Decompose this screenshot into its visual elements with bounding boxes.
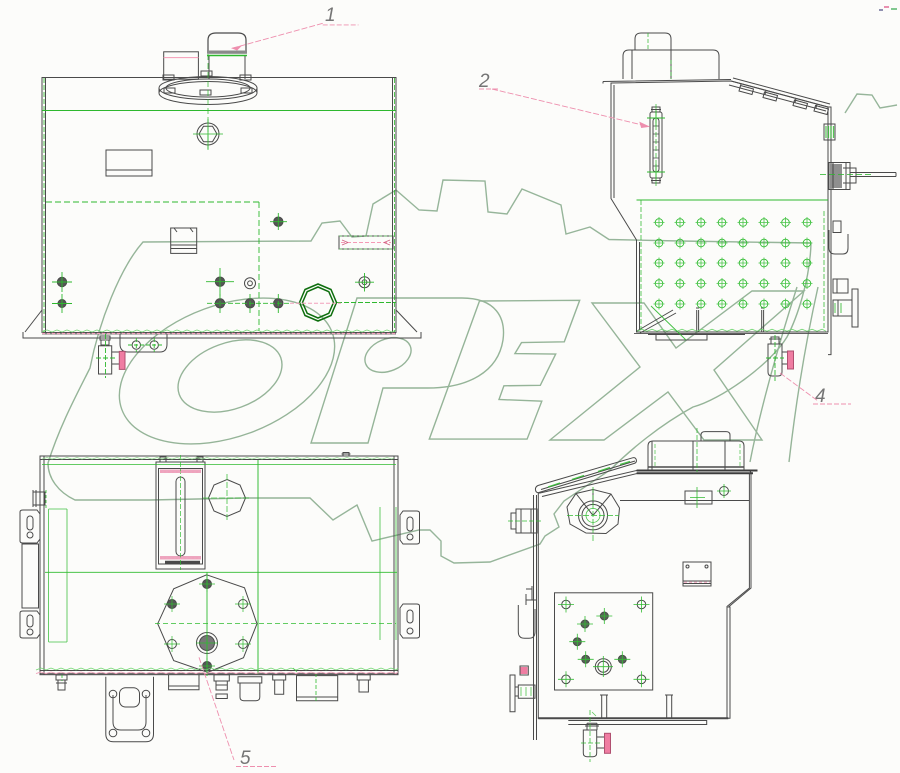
svg-text:1: 1 [325, 5, 336, 26]
svg-text:5: 5 [240, 748, 251, 769]
